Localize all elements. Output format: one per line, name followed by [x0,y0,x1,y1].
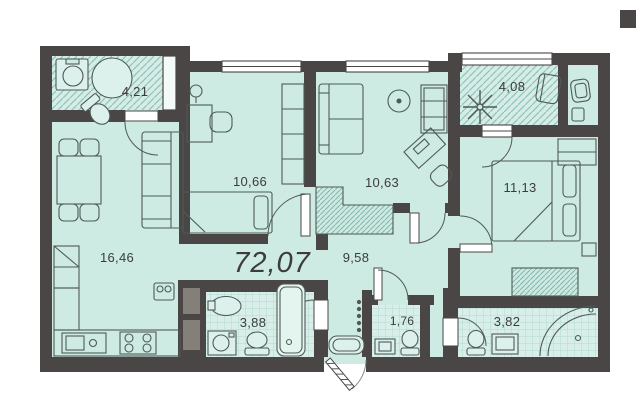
vent-shaft [163,56,176,110]
neighbor-wall-stub [620,10,636,28]
label-bathroom-top: 4,21 [122,84,149,99]
plant-icon [463,90,497,124]
shower-toilet-icon [467,331,485,356]
wc-sink-icon [375,339,395,354]
label-bedroom: 11,13 [503,180,536,195]
label-wc: 1,76 [390,314,414,328]
label-total-area: 72,07 [233,247,311,279]
label-bathroom-main: 3,88 [240,315,267,330]
wc-toilet-icon [401,331,419,356]
bench-icon [329,336,364,354]
shower-sink-icon [492,334,518,354]
label-room-mid-right: 10,63 [365,175,399,190]
label-room-mid-left: 10,66 [233,174,267,189]
floor-plan-drawing: 4,21 10,66 10,63 4,08 11,13 16,46 9,58 3… [0,0,640,405]
label-hall: 9,58 [343,250,370,265]
label-shower-room: 3,82 [494,314,521,329]
label-kitchen-living: 16,46 [100,250,134,265]
window-room-mid-right [346,61,429,72]
floor-plan: 4,21 10,66 10,63 4,08 11,13 16,46 9,58 3… [0,0,640,405]
dresser-icon [512,268,578,296]
corner-sink-icon [56,59,88,90]
label-loggia: 4,08 [499,79,526,94]
balcony-door-window [482,125,512,137]
toilet-icon [245,332,269,355]
window-room-mid-left [222,61,301,72]
bathtub-icon [277,284,305,356]
window-loggia [462,53,552,65]
washing-machine-icon [208,331,236,355]
